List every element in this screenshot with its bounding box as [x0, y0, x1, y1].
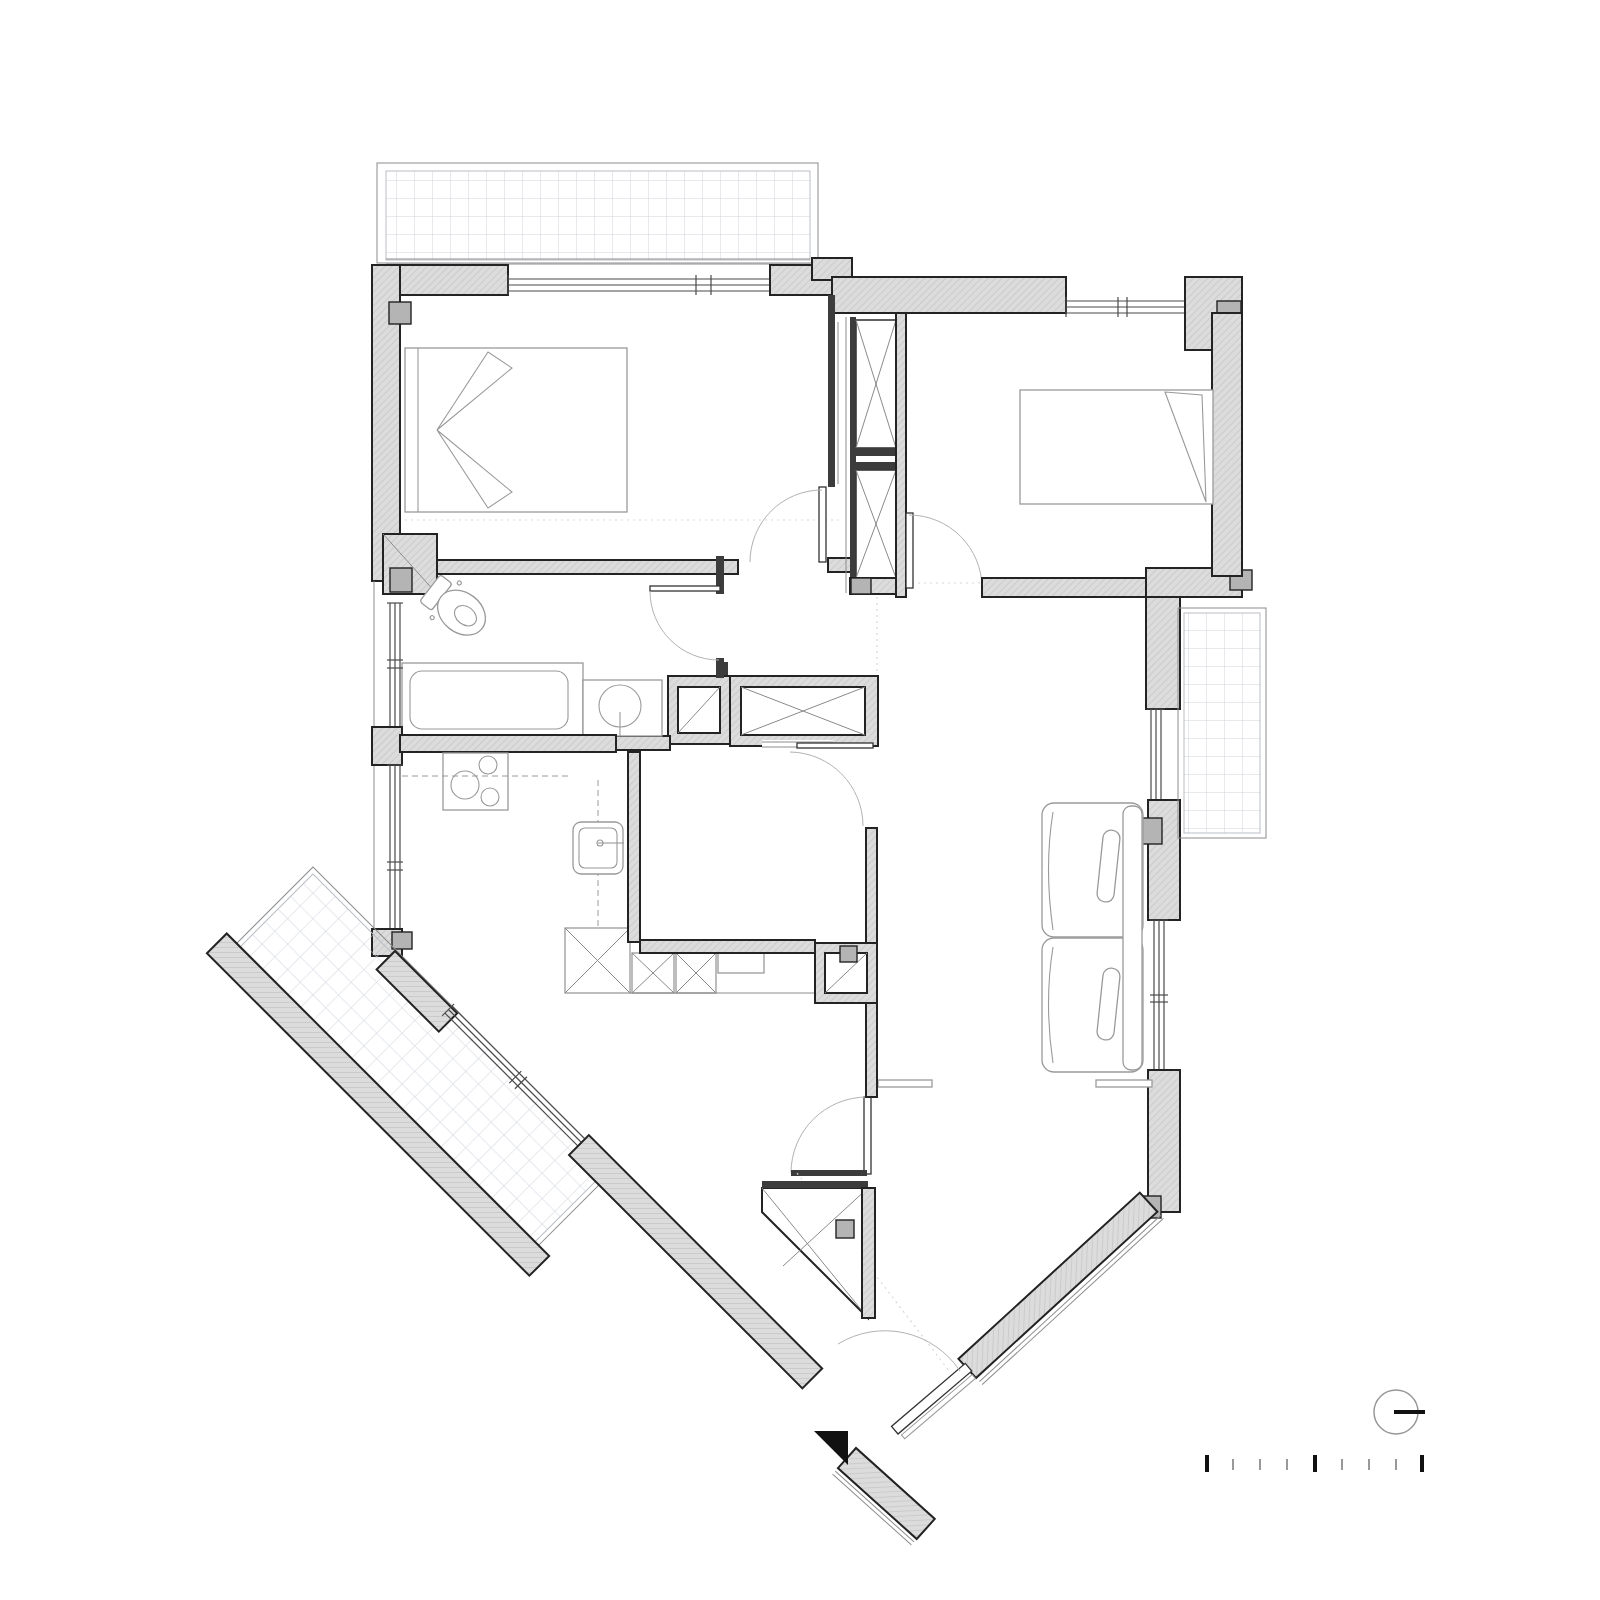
window-bedroom2-north — [1066, 297, 1185, 317]
shaft-utility — [815, 943, 877, 1003]
scale-minor-tick — [1232, 1459, 1234, 1470]
wall-segment — [372, 727, 402, 765]
corner-block — [383, 534, 437, 594]
wall-kitchen-south — [640, 940, 815, 953]
wall-kitchen-north — [400, 735, 616, 752]
refrigerator-x-box — [565, 928, 630, 993]
scale-minor-tick — [1286, 1459, 1288, 1470]
wall-bedroom2-south — [982, 578, 1150, 597]
column — [840, 946, 857, 962]
door-leaf — [650, 586, 720, 591]
balcony-sw-tiles — [240, 874, 608, 1242]
scale-major-tick — [1420, 1455, 1424, 1472]
wardrobe-shafts — [846, 313, 906, 597]
column — [836, 1220, 854, 1238]
floor-plan-drawing — [0, 0, 1600, 1600]
exterior-walls-east — [1136, 597, 1266, 1218]
wall-segment — [1148, 1070, 1180, 1212]
wall-diagonal-southeast — [958, 1193, 1163, 1385]
wall-utility-west — [628, 752, 640, 942]
door-swing-arc — [838, 1331, 960, 1371]
floor-plan-canvas — [0, 0, 1600, 1600]
door-bedroom2 — [906, 513, 982, 588]
wall-segment — [1146, 597, 1180, 709]
entrance-door — [892, 1363, 977, 1440]
balcony-north — [377, 163, 818, 264]
scale-minor-tick — [1341, 1459, 1343, 1470]
column — [389, 302, 411, 324]
window-living-east-1 — [1147, 709, 1165, 800]
exterior-walls-west — [372, 581, 412, 956]
scale-bar — [1205, 1455, 1424, 1472]
door-leaf — [819, 487, 826, 562]
washbasin — [583, 680, 662, 736]
console-shelf — [1096, 1080, 1152, 1087]
wall-segment — [832, 277, 1066, 313]
shaft-entrance — [762, 1181, 875, 1318]
door-leaf — [906, 513, 913, 588]
kitchen-sink — [573, 822, 624, 874]
wall-diagonal — [569, 1135, 822, 1388]
door-living-hall — [791, 1097, 871, 1176]
bedroom-1 — [383, 295, 854, 594]
door-swing-arc — [750, 490, 822, 562]
window-kitchen-west — [387, 765, 403, 931]
scale-major-tick — [1313, 1455, 1317, 1472]
door-leaf — [797, 743, 873, 748]
window-living-east-2 — [1150, 920, 1168, 1070]
door-leaf — [892, 1363, 972, 1434]
scale-minor-tick — [1259, 1459, 1261, 1470]
wall-segment — [866, 1003, 877, 1097]
door-swing-arc — [909, 515, 982, 588]
cabinet-x-boxes — [632, 953, 764, 993]
scale-minor-tick — [1368, 1459, 1370, 1470]
scale-minor-tick — [1395, 1459, 1397, 1470]
door-swing-arc — [791, 1097, 867, 1173]
single-bed — [1020, 390, 1213, 504]
door-leaf — [864, 1097, 871, 1174]
wall-stub — [716, 658, 724, 678]
window-bedroom1-north — [508, 275, 770, 295]
column — [851, 578, 871, 594]
two-seat-sofa — [1042, 803, 1143, 1072]
door-utility — [790, 743, 873, 826]
wall-wardrobe-east — [896, 313, 906, 597]
column — [392, 932, 412, 949]
cooktop — [443, 753, 508, 810]
balcony-east-tiles — [1184, 613, 1260, 833]
kitchen — [400, 735, 816, 993]
door-swing-arc — [790, 752, 863, 826]
balcony-north-tiles — [386, 171, 810, 260]
console-shelf — [878, 1080, 932, 1087]
door-swing-arc — [650, 591, 719, 660]
window-bathroom-west — [387, 603, 403, 727]
column — [390, 568, 412, 592]
wall-bedroom2-east — [1212, 313, 1242, 576]
bedroom-2 — [906, 313, 1252, 597]
double-bed — [405, 348, 627, 512]
wall-utility-east — [866, 828, 877, 943]
balcony-east — [1178, 608, 1266, 838]
wall-bedroom1-east — [828, 295, 835, 487]
utility-room — [790, 743, 877, 1097]
door-bathroom — [650, 586, 720, 660]
scale-major-tick — [1205, 1455, 1209, 1472]
wall-bedroom1-south — [400, 560, 738, 574]
north-indicator — [1374, 1390, 1425, 1434]
door-bedroom1 — [750, 487, 826, 562]
entrance-marker-triangle — [814, 1431, 848, 1465]
entrance — [762, 1181, 1163, 1545]
bathtub — [402, 663, 583, 736]
wall-stub — [616, 736, 670, 750]
wall-stub — [791, 1170, 867, 1176]
